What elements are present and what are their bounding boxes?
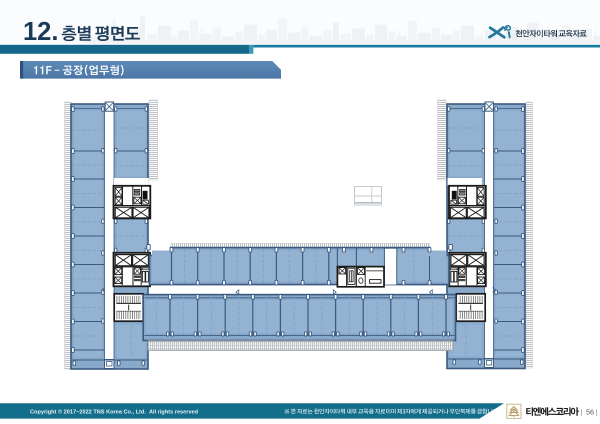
svg-text:12.: 12. (23, 18, 58, 46)
svg-text:|: | (596, 407, 598, 416)
svg-text:Copyright © 2017~2022 TNS Kore: Copyright © 2017~2022 TNS Korea Co., Ltd… (30, 408, 199, 415)
svg-text:56: 56 (586, 407, 594, 416)
svg-text:|: | (581, 407, 583, 416)
